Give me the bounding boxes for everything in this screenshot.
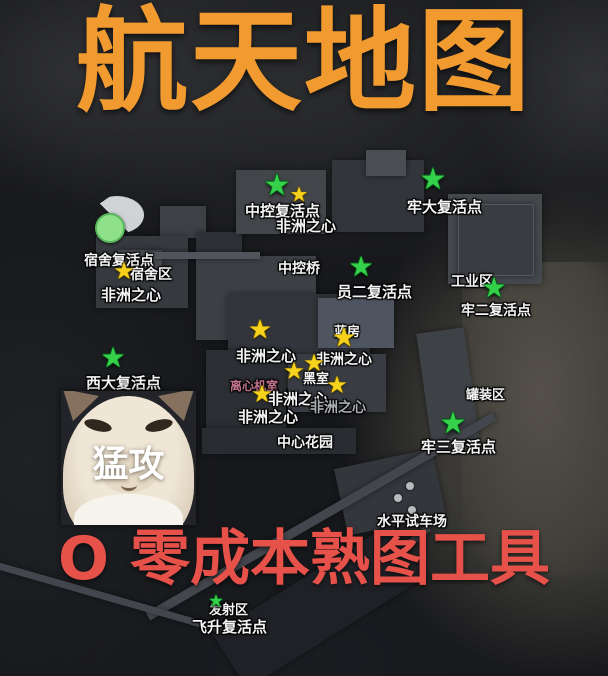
central-garden-label: 中心花园 xyxy=(277,432,333,452)
launch-respawn-star-marker: ★ xyxy=(208,594,223,611)
west-respawn-label: 西大复活点 xyxy=(86,372,161,393)
yuan2-respawn-star-marker: ★ xyxy=(348,253,373,281)
meme-caption: 猛攻 xyxy=(61,435,196,487)
loot-star-marker: ★ xyxy=(113,259,135,283)
page-title: 航天地图 xyxy=(0,4,608,122)
bottom-slogan: O 零成本熟图工具 xyxy=(0,526,608,592)
loot-star-marker: ★ xyxy=(332,325,356,352)
map-tank-dot xyxy=(406,482,414,490)
loot-star-marker: ★ xyxy=(283,359,305,383)
laoda-respawn-star-marker: ★ xyxy=(420,165,447,195)
meme-cat-image: 猛攻 xyxy=(61,391,196,525)
map-tank-dot xyxy=(394,494,402,502)
west-respawn-star-marker: ★ xyxy=(100,344,125,372)
map-road xyxy=(148,252,260,259)
loot-star-marker: ★ xyxy=(251,382,273,406)
africa-heart-label: 非洲之心 xyxy=(238,406,298,427)
lao2-respawn-star-marker: ★ xyxy=(481,274,506,302)
loot-star-marker: ★ xyxy=(290,185,309,206)
laoda-respawn-label: 牢大复活点 xyxy=(407,196,482,217)
africa-heart-label: 非洲之心 xyxy=(310,397,366,417)
feisheng-respawn-label: 飞升复活点 xyxy=(192,616,267,637)
dorm-area-label: 宿舍区 xyxy=(130,264,172,284)
loot-star-marker: ★ xyxy=(326,373,348,397)
dorm-respawn-circle-marker xyxy=(95,213,125,243)
loot-star-marker: ★ xyxy=(303,351,325,375)
central-control-respawn-star-marker: ★ xyxy=(264,171,291,201)
central-bridge-label: 中控桥 xyxy=(278,258,320,278)
game-map-poster: 中控复活点非洲之心牢大复活点宿舍复活点宿舍区非洲之心中控桥员二复活点工业区牢二复… xyxy=(0,0,608,676)
yuan2-respawn-label: 员二复活点 xyxy=(337,281,412,302)
canning-area-label: 罐装区 xyxy=(466,384,505,403)
africa-heart-label: 非洲之心 xyxy=(276,215,336,236)
map-building xyxy=(366,150,406,176)
africa-heart-label: 非洲之心 xyxy=(101,284,161,305)
loot-star-marker: ★ xyxy=(248,317,272,344)
lao3-respawn-star-marker: ★ xyxy=(440,409,467,439)
